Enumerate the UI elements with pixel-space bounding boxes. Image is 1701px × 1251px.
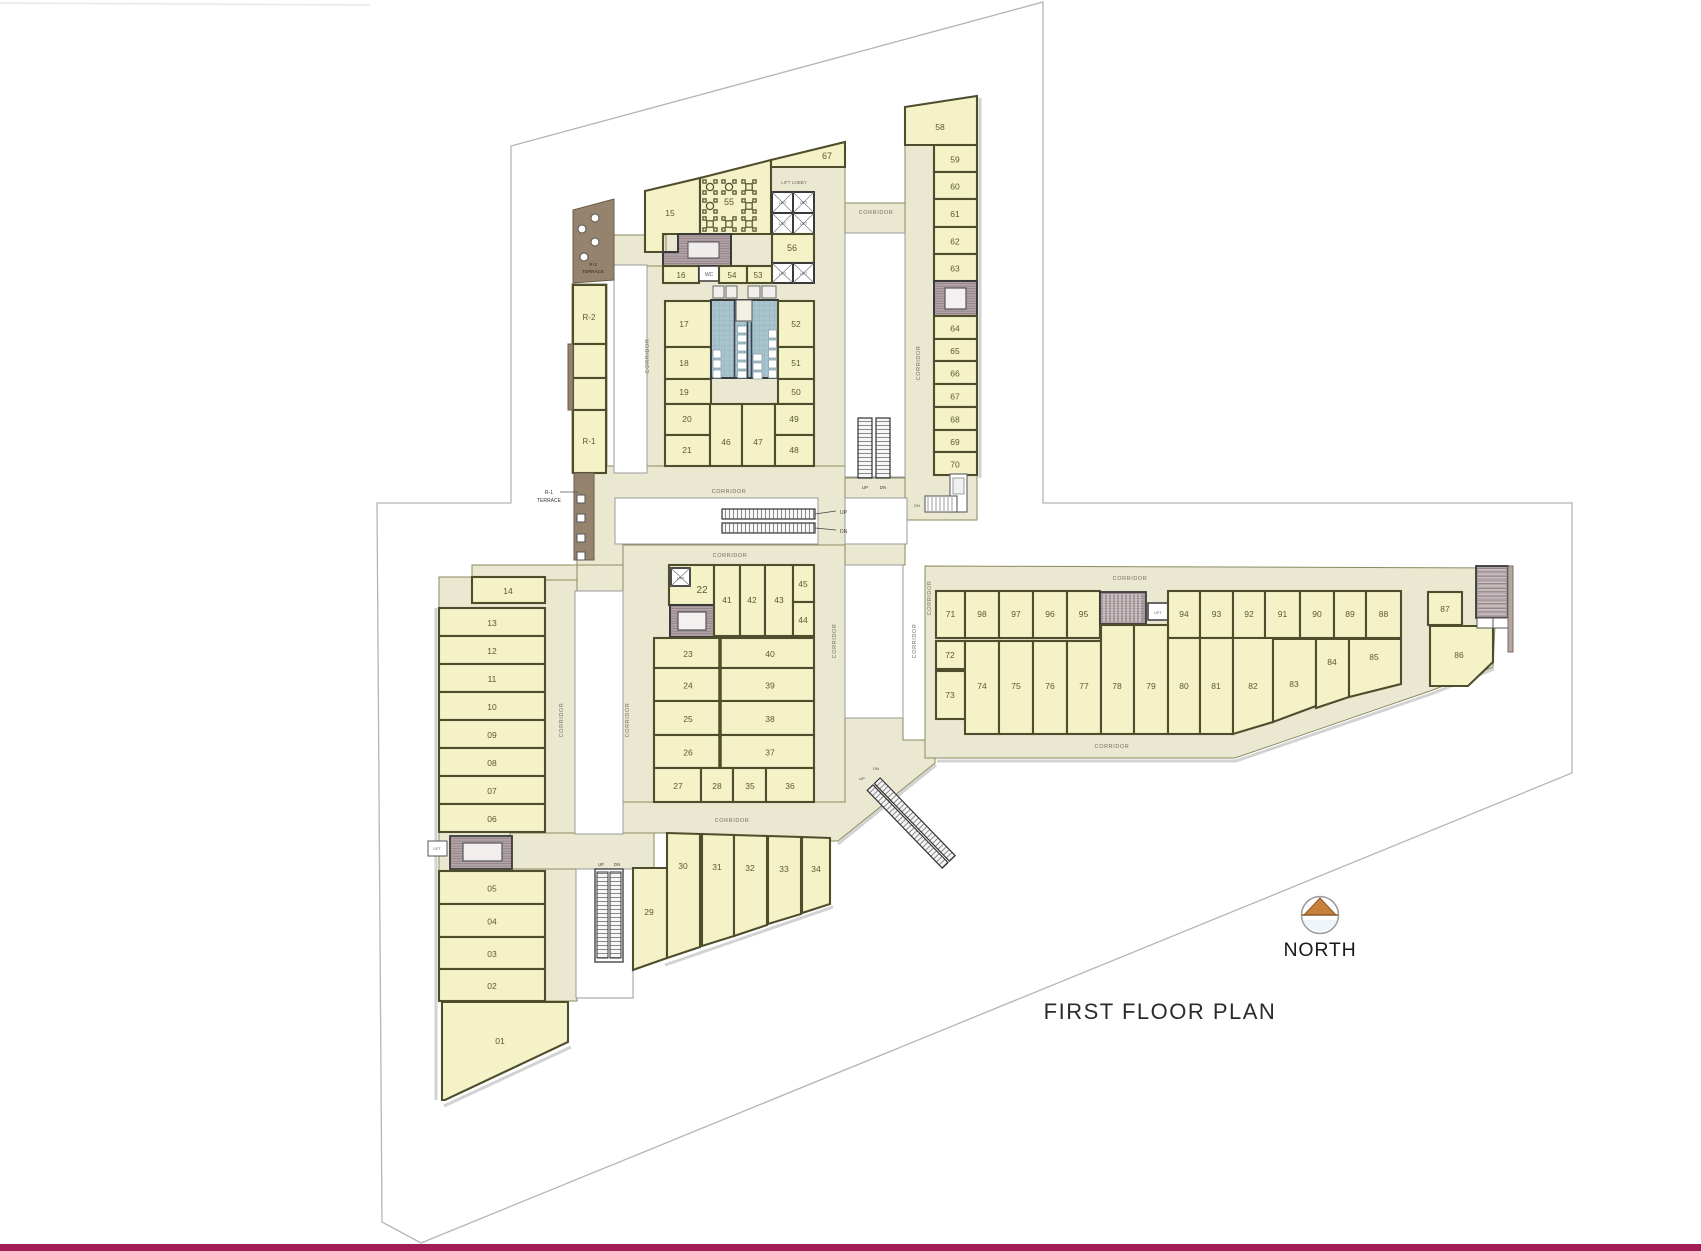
svg-text:65: 65 — [950, 346, 960, 356]
svg-text:90: 90 — [1312, 609, 1322, 619]
svg-text:R-3: R-3 — [589, 262, 597, 267]
svg-text:23: 23 — [683, 649, 693, 659]
svg-text:36: 36 — [785, 781, 795, 791]
svg-text:38: 38 — [765, 714, 775, 724]
svg-text:UP: UP — [859, 776, 865, 781]
svg-text:CORRIDOR: CORRIDOR — [559, 703, 565, 738]
svg-text:54: 54 — [728, 271, 737, 280]
svg-text:66: 66 — [950, 369, 960, 379]
svg-text:DN: DN — [614, 862, 621, 867]
svg-text:83: 83 — [1289, 679, 1299, 689]
svg-text:02: 02 — [487, 981, 497, 991]
svg-text:47: 47 — [753, 437, 763, 447]
svg-text:79: 79 — [1146, 681, 1156, 691]
svg-text:33: 33 — [779, 864, 789, 874]
svg-text:LIFT: LIFT — [433, 847, 441, 851]
svg-text:40: 40 — [765, 649, 775, 659]
svg-text:75: 75 — [1011, 681, 1021, 691]
svg-text:67: 67 — [822, 151, 832, 161]
svg-text:72: 72 — [945, 650, 955, 660]
svg-text:42: 42 — [747, 595, 757, 605]
svg-text:CORRIDOR: CORRIDOR — [645, 339, 651, 374]
svg-text:98: 98 — [977, 609, 987, 619]
svg-text:92: 92 — [1244, 609, 1254, 619]
svg-text:CORRIDOR: CORRIDOR — [1095, 744, 1130, 750]
svg-text:LIFT LOBBY: LIFT LOBBY — [781, 180, 806, 185]
svg-text:26: 26 — [683, 748, 693, 758]
svg-text:86: 86 — [1454, 650, 1464, 660]
svg-text:LIFT: LIFT — [800, 222, 808, 226]
svg-text:TERRACE: TERRACE — [537, 498, 562, 504]
svg-text:77: 77 — [1079, 681, 1089, 691]
svg-text:LIFT: LIFT — [1154, 611, 1162, 615]
svg-text:UP: UP — [598, 862, 604, 867]
svg-text:01: 01 — [495, 1036, 505, 1046]
svg-text:91: 91 — [1278, 609, 1288, 619]
svg-text:UP: UP — [840, 510, 848, 516]
svg-text:CORRIDOR: CORRIDOR — [832, 624, 838, 659]
svg-text:74: 74 — [977, 681, 987, 691]
svg-text:34: 34 — [811, 864, 821, 874]
svg-text:CORRIDOR: CORRIDOR — [625, 703, 631, 738]
svg-text:51: 51 — [791, 358, 801, 368]
svg-text:FIRST FLOOR PLAN: FIRST FLOOR PLAN — [1044, 999, 1277, 1024]
svg-text:08: 08 — [487, 758, 497, 768]
svg-text:41: 41 — [722, 595, 732, 605]
svg-text:95: 95 — [1079, 609, 1089, 619]
svg-text:LIFT: LIFT — [779, 201, 787, 205]
svg-text:62: 62 — [950, 237, 960, 247]
svg-text:35: 35 — [745, 781, 755, 791]
svg-text:59: 59 — [950, 155, 960, 165]
svg-text:89: 89 — [1345, 609, 1355, 619]
svg-text:53: 53 — [754, 271, 763, 280]
svg-text:27: 27 — [673, 781, 683, 791]
svg-text:LIFT: LIFT — [677, 577, 685, 581]
svg-text:76: 76 — [1045, 681, 1055, 691]
svg-text:19: 19 — [679, 387, 689, 397]
svg-text:55: 55 — [724, 197, 734, 207]
svg-text:DN: DN — [840, 529, 848, 535]
svg-text:20: 20 — [682, 414, 692, 424]
svg-text:DN: DN — [880, 485, 887, 490]
svg-text:37: 37 — [765, 748, 775, 758]
svg-text:39: 39 — [765, 681, 775, 691]
svg-text:60: 60 — [950, 182, 960, 192]
svg-text:82: 82 — [1248, 681, 1258, 691]
svg-text:11: 11 — [488, 674, 497, 684]
svg-text:30: 30 — [678, 861, 688, 871]
svg-text:80: 80 — [1179, 681, 1189, 691]
svg-text:R-1: R-1 — [583, 437, 596, 446]
svg-text:94: 94 — [1179, 609, 1189, 619]
svg-text:CORRIDOR: CORRIDOR — [859, 210, 894, 216]
svg-text:50: 50 — [791, 387, 801, 397]
svg-text:61: 61 — [950, 209, 960, 219]
svg-text:22: 22 — [696, 585, 708, 596]
svg-text:87: 87 — [1440, 604, 1450, 614]
svg-text:93: 93 — [1212, 609, 1222, 619]
svg-text:31: 31 — [712, 862, 722, 872]
svg-text:13: 13 — [487, 618, 497, 628]
svg-text:56: 56 — [787, 243, 797, 253]
svg-text:R-1: R-1 — [545, 490, 553, 496]
svg-text:18: 18 — [679, 358, 689, 368]
svg-text:03: 03 — [487, 949, 497, 959]
svg-text:07: 07 — [487, 786, 497, 796]
svg-text:16: 16 — [677, 271, 686, 280]
svg-text:85: 85 — [1369, 652, 1379, 662]
svg-text:LIFT: LIFT — [779, 272, 787, 276]
svg-text:97: 97 — [1011, 609, 1021, 619]
svg-text:43: 43 — [774, 595, 784, 605]
svg-text:10: 10 — [487, 702, 497, 712]
svg-text:06: 06 — [487, 814, 497, 824]
svg-text:12: 12 — [487, 646, 497, 656]
svg-text:09: 09 — [487, 730, 497, 740]
svg-text:14: 14 — [503, 586, 513, 596]
svg-text:CORRIDOR: CORRIDOR — [715, 818, 750, 824]
svg-text:46: 46 — [721, 437, 731, 447]
svg-text:LIFT: LIFT — [800, 201, 808, 205]
svg-text:88: 88 — [1379, 609, 1389, 619]
svg-text:CORRIDOR: CORRIDOR — [927, 581, 933, 616]
svg-text:CORRIDOR: CORRIDOR — [912, 624, 918, 659]
svg-text:48: 48 — [789, 445, 799, 455]
svg-text:21: 21 — [682, 445, 692, 455]
svg-text:15: 15 — [665, 208, 675, 218]
svg-text:R-2: R-2 — [583, 313, 596, 322]
svg-text:67: 67 — [950, 392, 960, 402]
svg-text:UP: UP — [862, 485, 868, 490]
svg-text:DN: DN — [914, 503, 920, 508]
svg-text:WC: WC — [705, 272, 714, 278]
svg-text:63: 63 — [950, 264, 960, 274]
svg-text:69: 69 — [950, 437, 960, 447]
svg-text:CORRIDOR: CORRIDOR — [712, 489, 747, 495]
svg-text:45: 45 — [798, 579, 808, 589]
svg-text:32: 32 — [745, 863, 755, 873]
svg-text:TERRACE: TERRACE — [582, 269, 604, 274]
svg-text:NORTH: NORTH — [1284, 939, 1357, 961]
svg-text:96: 96 — [1045, 609, 1055, 619]
svg-text:49: 49 — [789, 414, 799, 424]
svg-text:84: 84 — [1327, 657, 1337, 667]
svg-text:44: 44 — [798, 615, 808, 625]
svg-text:CORRIDOR: CORRIDOR — [713, 553, 748, 559]
svg-text:CORRIDOR: CORRIDOR — [916, 346, 922, 381]
svg-text:58: 58 — [935, 122, 945, 132]
svg-text:29: 29 — [644, 907, 654, 917]
svg-text:68: 68 — [950, 415, 960, 425]
svg-text:81: 81 — [1211, 681, 1221, 691]
svg-text:64: 64 — [950, 324, 960, 334]
svg-text:70: 70 — [950, 460, 960, 470]
svg-text:52: 52 — [791, 319, 801, 329]
svg-text:24: 24 — [683, 681, 693, 691]
svg-text:DN: DN — [873, 766, 879, 771]
svg-text:LIFT: LIFT — [800, 272, 808, 276]
svg-text:05: 05 — [487, 884, 497, 894]
svg-text:LIFT: LIFT — [779, 222, 787, 226]
svg-text:04: 04 — [487, 917, 497, 927]
svg-text:25: 25 — [683, 714, 693, 724]
svg-text:73: 73 — [945, 690, 955, 700]
svg-text:CORRIDOR: CORRIDOR — [1113, 576, 1148, 582]
svg-text:17: 17 — [679, 319, 689, 329]
svg-text:71: 71 — [946, 609, 956, 619]
svg-text:78: 78 — [1112, 681, 1122, 691]
svg-text:28: 28 — [712, 781, 722, 791]
